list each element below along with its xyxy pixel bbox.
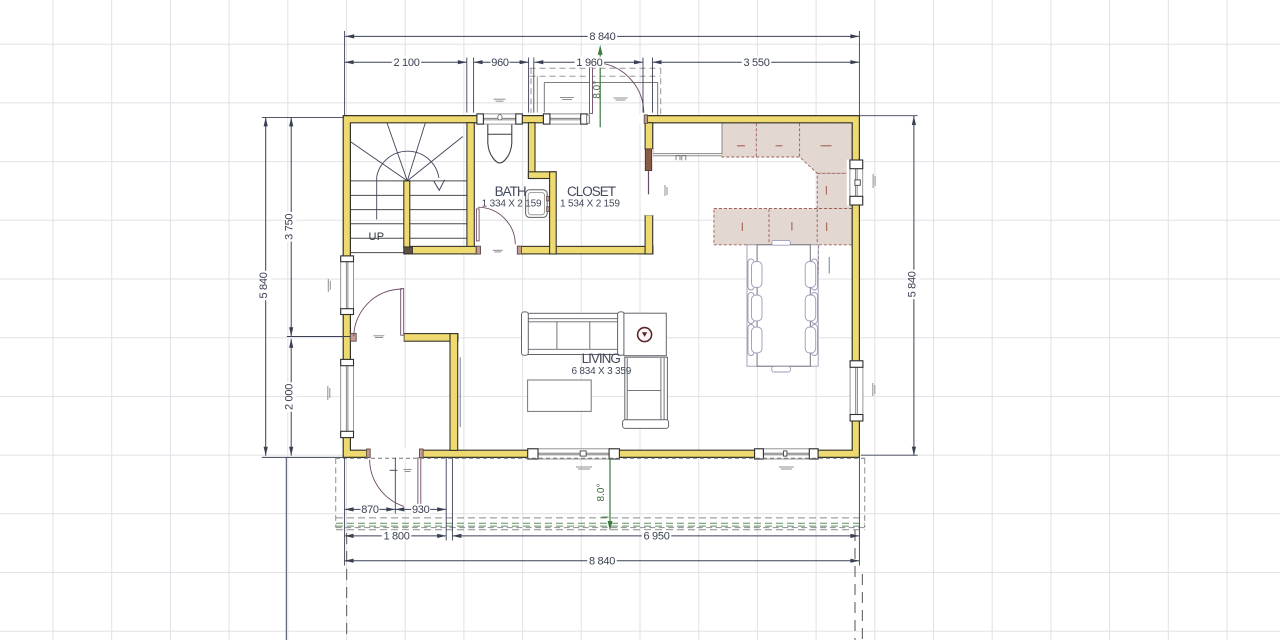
svg-text:870: 870 (361, 504, 379, 516)
svg-text:1 960: 1 960 (576, 57, 602, 69)
svg-text:8 840: 8 840 (589, 31, 615, 43)
svg-text:1 800: 1 800 (383, 531, 409, 543)
svg-text:LIVING: LIVING (582, 351, 621, 366)
svg-text:UP: UP (368, 231, 384, 243)
svg-text:5 840: 5 840 (258, 272, 270, 298)
svg-text:8 840: 8 840 (589, 555, 615, 567)
svg-text:8.0°: 8.0° (592, 81, 603, 99)
svg-text:3 550: 3 550 (743, 57, 769, 69)
svg-text:CLOSET: CLOSET (567, 184, 616, 199)
svg-text:5 840: 5 840 (906, 271, 918, 297)
svg-text:6 834 X 3 359: 6 834 X 3 359 (571, 366, 631, 377)
svg-text:8.0°: 8.0° (596, 484, 607, 502)
svg-text:960: 960 (491, 57, 509, 69)
svg-text:1 334 X 2 159: 1 334 X 2 159 (482, 199, 542, 210)
svg-text:BATH: BATH (495, 184, 526, 199)
svg-text:2 100: 2 100 (393, 57, 419, 69)
svg-text:3 750: 3 750 (284, 214, 296, 240)
svg-text:6 950: 6 950 (643, 531, 669, 543)
svg-text:930: 930 (412, 504, 430, 516)
svg-text:2 000: 2 000 (284, 384, 296, 410)
svg-text:1 534 X 2 159: 1 534 X 2 159 (560, 199, 620, 210)
